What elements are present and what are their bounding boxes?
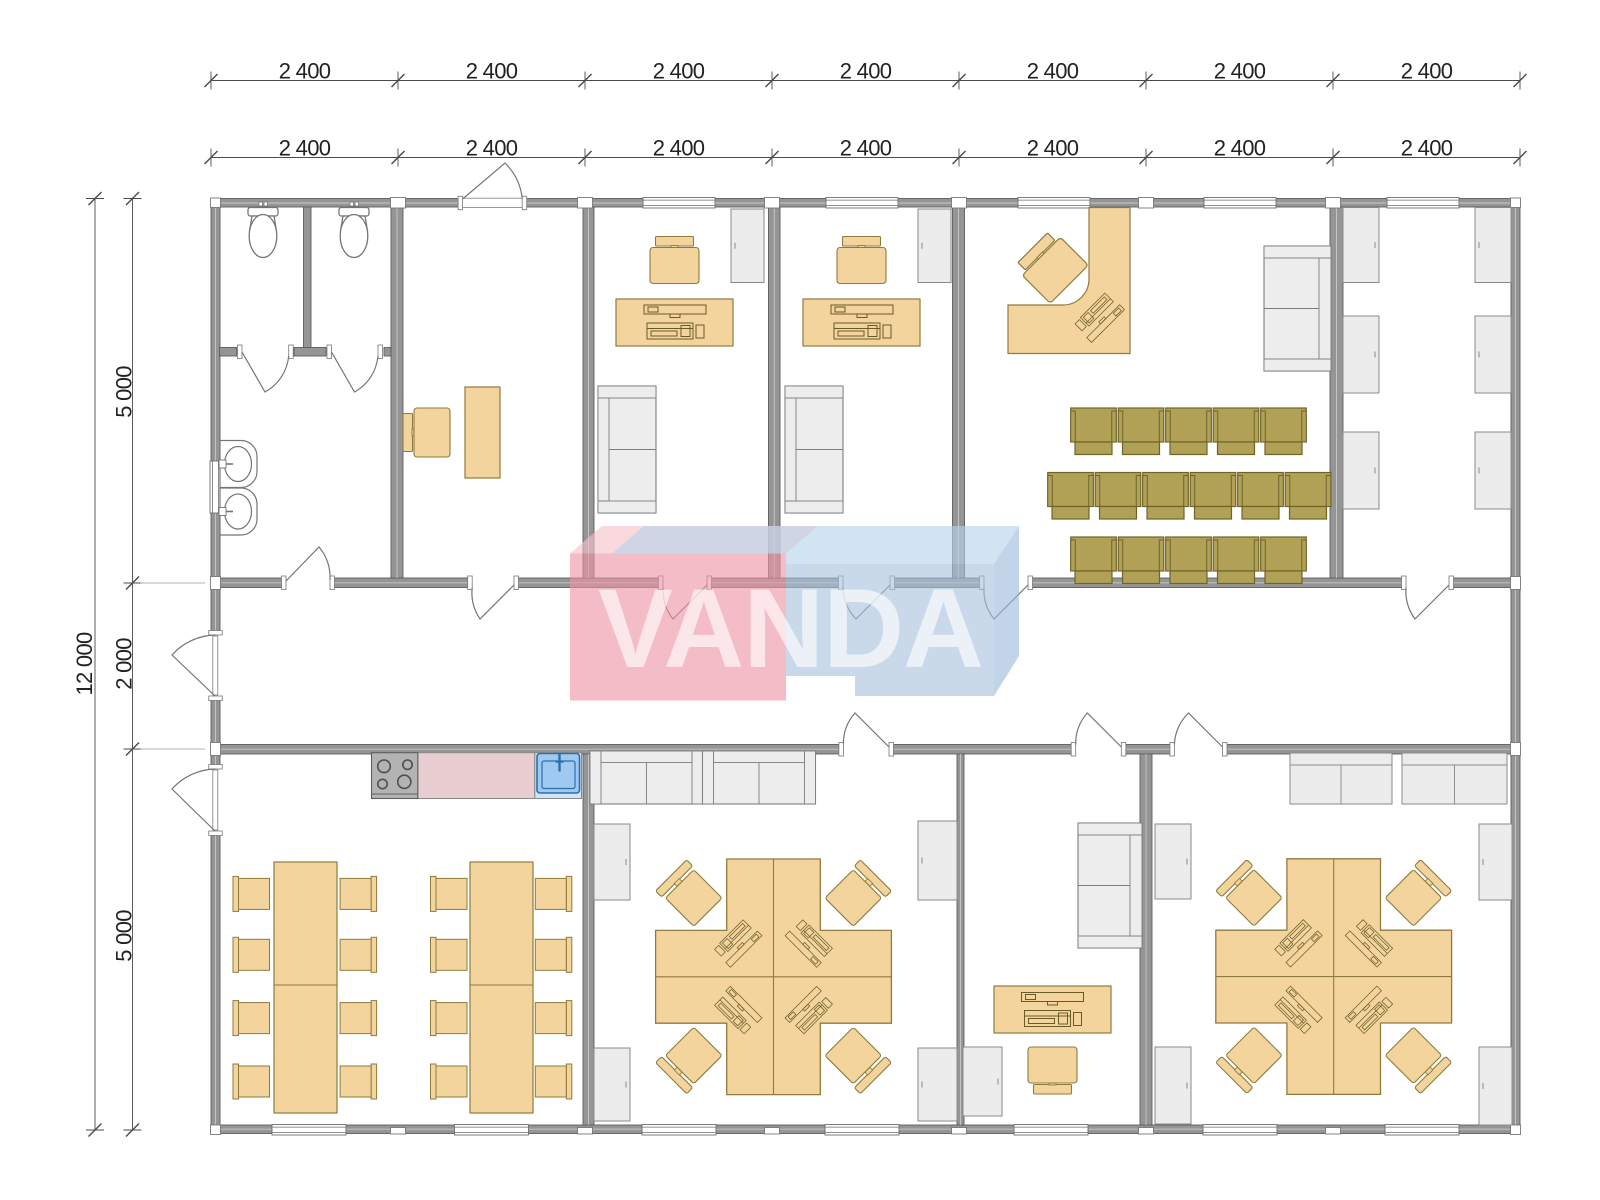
svg-text:2 400: 2 400 bbox=[840, 136, 892, 161]
svg-text:2 400: 2 400 bbox=[466, 59, 518, 84]
svg-text:5 000: 5 000 bbox=[112, 366, 137, 418]
svg-text:2 400: 2 400 bbox=[279, 59, 331, 84]
svg-text:5 000: 5 000 bbox=[112, 910, 137, 962]
svg-text:12 000: 12 000 bbox=[72, 632, 97, 696]
svg-text:2 400: 2 400 bbox=[466, 136, 518, 161]
svg-text:2 400: 2 400 bbox=[1027, 136, 1079, 161]
svg-text:VANDA: VANDA bbox=[598, 566, 983, 691]
svg-text:2 400: 2 400 bbox=[1401, 59, 1453, 84]
svg-text:2 400: 2 400 bbox=[840, 59, 892, 84]
svg-text:2 400: 2 400 bbox=[653, 136, 705, 161]
svg-text:2 400: 2 400 bbox=[653, 59, 705, 84]
svg-text:2 000: 2 000 bbox=[112, 638, 137, 690]
svg-text:2 400: 2 400 bbox=[1214, 59, 1266, 84]
svg-text:2 400: 2 400 bbox=[1401, 136, 1453, 161]
svg-text:2 400: 2 400 bbox=[1214, 136, 1266, 161]
svg-text:2 400: 2 400 bbox=[1027, 59, 1079, 84]
svg-text:2 400: 2 400 bbox=[279, 136, 331, 161]
